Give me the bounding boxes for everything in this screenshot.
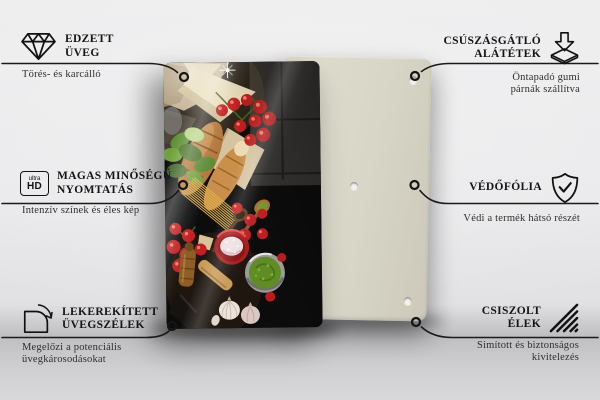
callout-rounded-glass-edges: LEKEREKÍTETT ÜVEGSZÉLEK Megelőzi a poten… xyxy=(20,303,230,365)
product-infographic: EDZETT ÜVEG Törés- és karcálló CSÚSZÁSGÁ… xyxy=(0,0,600,400)
callout-subtitle: Megelőzi a potenciális üvegkárosodásokat xyxy=(20,342,230,365)
subtitle-line: Simított és biztonságos xyxy=(359,340,579,352)
title-line: ÜVEG xyxy=(65,47,114,61)
anti-slip-pads-icon xyxy=(549,31,580,65)
shield-check-icon xyxy=(550,172,580,204)
callout-subtitle: Intenzív színek és éles kép xyxy=(20,205,230,217)
subtitle-line: Megelőzi a potenciális xyxy=(22,342,230,354)
title-line: ÉLEK xyxy=(482,318,541,332)
callout-title: EDZETT ÜVEG xyxy=(65,33,114,60)
title-line: ALÁTÉTEK xyxy=(443,48,541,62)
callout-tempered-glass: EDZETT ÜVEG Törés- és karcálló xyxy=(20,31,220,81)
subtitle-line: üvegkárosodásokat xyxy=(22,354,230,366)
title-line: CSISZOLT xyxy=(482,305,541,319)
subtitle-line: Öntapadó gumi xyxy=(360,72,580,84)
callout-title: MAGAS MINŐSÉGŰ NYOMTATÁS xyxy=(57,170,171,197)
title-line: LEKEREKÍTETT xyxy=(62,306,158,320)
callout-high-quality-print: ultra HD MAGAS MINŐSÉGŰ NYOMTATÁS Intenz… xyxy=(20,170,230,217)
subtitle-line: párnák szállítva xyxy=(360,84,580,96)
callout-subtitle: Védi a termék hátsó részét xyxy=(360,213,580,225)
callout-subtitle: Öntapadó gumi párnák szállítva xyxy=(360,72,580,95)
title-line: ÜVEGSZÉLEK xyxy=(62,319,158,333)
callout-title: CSÚSZÁSGÁTLÓ ALÁTÉTEK xyxy=(443,35,541,62)
rounded-corner-icon xyxy=(20,303,54,335)
subtitle-line: Törés- és karcálló xyxy=(22,69,220,81)
title-line: EDZETT xyxy=(65,33,114,47)
callout-title: LEKEREKÍTETT ÜVEGSZÉLEK xyxy=(62,306,158,333)
subtitle-line: kivitelezés xyxy=(359,352,579,364)
subtitle-line: Védi a termék hátsó részét xyxy=(360,213,580,225)
title-line: CSÚSZÁSGÁTLÓ xyxy=(443,35,541,49)
polished-edges-icon xyxy=(549,303,579,333)
callout-polished-edges: CSISZOLT ÉLEK Simított és biztonságos ki… xyxy=(359,303,579,363)
title-line: NYOMTATÁS xyxy=(57,184,171,198)
ultra-hd-icon: ultra HD xyxy=(20,171,49,196)
mounting-hole xyxy=(349,182,357,190)
callout-title: VÉDŐFÓLIA xyxy=(469,181,542,195)
diamond-icon xyxy=(20,31,57,62)
callout-title: CSISZOLT ÉLEK xyxy=(482,305,541,332)
title-line: MAGAS MINŐSÉGŰ xyxy=(57,170,171,184)
ultra-hd-icon-text: HD xyxy=(27,182,42,192)
subtitle-line: Intenzív színek és éles kép xyxy=(22,205,230,217)
callout-subtitle: Törés- és karcálló xyxy=(20,69,220,81)
title-line: VÉDŐFÓLIA xyxy=(469,181,542,195)
callout-subtitle: Simított és biztonságos kivitelezés xyxy=(359,340,579,363)
callout-protective-film: VÉDŐFÓLIA Védi a termék hátsó részét xyxy=(360,172,580,225)
callout-anti-slip-pads: CSÚSZÁSGÁTLÓ ALÁTÉTEK Öntapadó gumi párn… xyxy=(360,31,580,95)
